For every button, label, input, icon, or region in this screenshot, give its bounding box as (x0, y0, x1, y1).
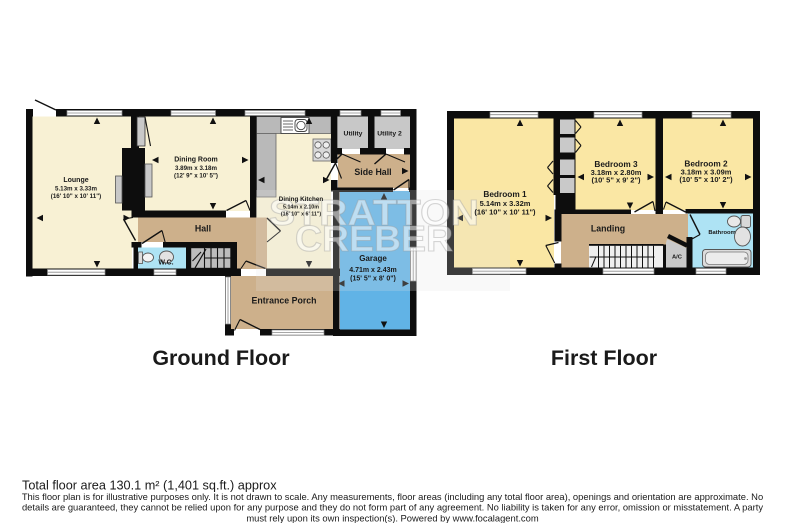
svg-text:Lounge: Lounge (63, 177, 88, 184)
svg-text:(15' 5" x 8' 0"): (15' 5" x 8' 0") (350, 276, 396, 283)
svg-text:Garage: Garage (359, 254, 387, 263)
svg-text:(16' 10" x 6' 11"): (16' 10" x 6' 11") (281, 212, 321, 218)
svg-text:Hall: Hall (195, 224, 211, 234)
svg-text:5.13m x 3.33m: 5.13m x 3.33m (55, 186, 97, 193)
svg-text:Dining Kitchen: Dining Kitchen (279, 196, 324, 203)
svg-text:CREBER: CREBER (295, 218, 453, 259)
svg-text:(12' 9" x 10' 5"): (12' 9" x 10' 5") (174, 173, 218, 180)
svg-text:Dining Room: Dining Room (174, 157, 218, 164)
svg-text:(16' 10" x 10' 11"): (16' 10" x 10' 11") (51, 193, 101, 200)
svg-text:This floor plan is for illustr: This floor plan is for illustrative purp… (22, 491, 763, 502)
svg-text:Utility: Utility (344, 131, 363, 138)
svg-text:3.89m x 3.18m: 3.89m x 3.18m (175, 165, 217, 172)
svg-text:details are guaranteed, they c: details are guaranteed, they cannot be r… (22, 502, 763, 513)
svg-text:Bedroom 1: Bedroom 1 (483, 189, 527, 199)
svg-text:4.71m x 2.43m: 4.71m x 2.43m (349, 267, 396, 274)
svg-text:(10' 5" x 9' 2"): (10' 5" x 9' 2") (591, 176, 641, 185)
svg-text:Bathroom: Bathroom (708, 230, 735, 236)
svg-text:5.14m x 2.10m: 5.14m x 2.10m (283, 205, 319, 211)
svg-text:(16' 10" x 10' 11"): (16' 10" x 10' 11") (474, 208, 536, 217)
svg-text:W.C.: W.C. (158, 260, 173, 267)
svg-text:Ground Floor: Ground Floor (152, 346, 290, 370)
svg-text:A/C: A/C (672, 255, 683, 261)
svg-text:Utility 2: Utility 2 (377, 131, 402, 138)
svg-text:Side Hall: Side Hall (354, 167, 391, 177)
svg-text:First Floor: First Floor (551, 346, 658, 370)
svg-text:Entrance Porch: Entrance Porch (251, 296, 316, 306)
svg-text:(10' 5" x 10' 2"): (10' 5" x 10' 2") (679, 175, 733, 184)
svg-text:must rely upon its own inspect: must rely upon its own inspection(s). Po… (246, 512, 539, 523)
svg-text:Landing: Landing (591, 224, 625, 234)
